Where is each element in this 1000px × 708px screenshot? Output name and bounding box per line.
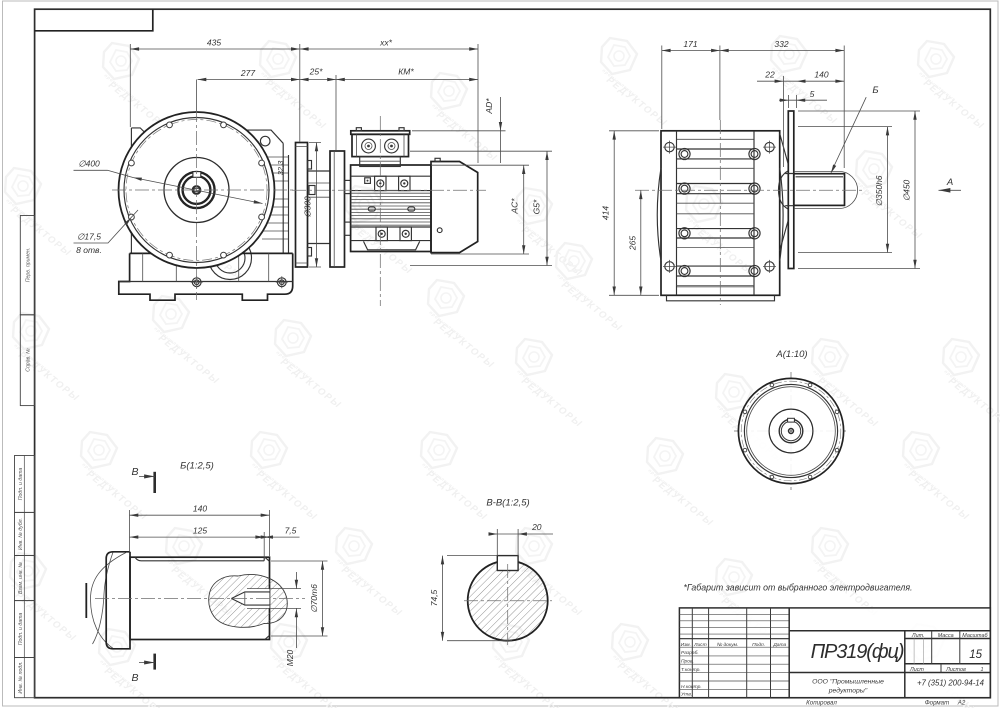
svg-text:32,3: 32,3 <box>276 160 285 175</box>
svg-text:140: 140 <box>814 70 828 80</box>
svg-text:Справ. №: Справ. № <box>26 348 32 372</box>
svg-text:Утв.: Утв. <box>681 692 692 698</box>
svg-text:Подп. и дата: Подп. и дата <box>18 613 24 646</box>
svg-text:*Габарит зависит от выбранного: *Габарит зависит от выбранного электродв… <box>683 583 912 593</box>
svg-text:Лит.: Лит. <box>911 633 925 639</box>
svg-text:А(1:10): А(1:10) <box>775 349 807 360</box>
svg-text:ПР319(фц): ПР319(фц) <box>811 641 904 663</box>
svg-text:Т.контр.: Т.контр. <box>681 667 701 673</box>
svg-text:Подп.: Подп. <box>752 642 765 648</box>
svg-text:Н.контр.: Н.контр. <box>681 684 702 690</box>
svg-text:В: В <box>131 466 138 478</box>
svg-text:8 отв.: 8 отв. <box>76 245 102 255</box>
svg-text:М20: М20 <box>285 649 295 666</box>
svg-text:В-В(1:2,5): В-В(1:2,5) <box>486 498 529 509</box>
svg-text:∅300: ∅300 <box>303 196 313 218</box>
svg-text:Б(1:2,5): Б(1:2,5) <box>180 461 214 472</box>
svg-text:Масштаб: Масштаб <box>962 633 988 639</box>
svg-text:Инв. № подл.: Инв. № подл. <box>18 661 24 693</box>
svg-text:редукторы": редукторы" <box>828 687 868 695</box>
svg-text:Листов: Листов <box>945 667 966 673</box>
svg-text:Лист: Лист <box>909 667 924 673</box>
svg-text:125: 125 <box>193 526 207 536</box>
svg-text:AD*: AD* <box>484 98 494 115</box>
svg-text:Взам. инв. №: Взам. инв. № <box>18 562 24 594</box>
svg-text:7,5: 7,5 <box>285 526 297 536</box>
svg-text:Лист: Лист <box>693 642 707 648</box>
svg-text:Разраб.: Разраб. <box>681 650 699 656</box>
svg-text:20: 20 <box>531 522 542 532</box>
svg-text:22: 22 <box>764 70 775 80</box>
svg-text:Б: Б <box>872 85 878 96</box>
svg-text:В: В <box>131 672 138 684</box>
svg-text:Инв. № дубл.: Инв. № дубл. <box>18 518 24 550</box>
svg-text:G5*: G5* <box>532 199 542 214</box>
svg-text:332: 332 <box>774 39 788 49</box>
svg-text:74,5: 74,5 <box>429 589 439 606</box>
svg-text:277: 277 <box>240 68 255 78</box>
svg-text:AC*: AC* <box>510 198 520 215</box>
svg-text:5: 5 <box>810 89 815 99</box>
svg-text:∅350h6: ∅350h6 <box>874 175 884 206</box>
svg-text:Копировал: Копировал <box>806 700 837 707</box>
svg-text:∅70m6: ∅70m6 <box>309 584 319 613</box>
svg-text:+7 (351) 200-94-14: +7 (351) 200-94-14 <box>917 679 985 688</box>
svg-text:А2: А2 <box>957 700 966 707</box>
svg-text:15: 15 <box>969 649 982 661</box>
svg-text:Подп. и дата: Подп. и дата <box>18 468 24 501</box>
svg-text:А: А <box>946 177 953 188</box>
svg-text:Перв. примен.: Перв. примен. <box>26 248 32 282</box>
svg-text:414: 414 <box>601 206 611 220</box>
svg-text:435: 435 <box>207 38 221 48</box>
svg-text:1: 1 <box>981 667 984 673</box>
svg-text:ООО "Промышленные: ООО "Промышленные <box>812 679 884 686</box>
svg-text:xx*: xx* <box>379 38 393 48</box>
svg-text:265: 265 <box>627 236 637 251</box>
svg-text:∅400: ∅400 <box>78 159 100 169</box>
svg-text:Дата: Дата <box>772 642 786 648</box>
svg-text:171: 171 <box>683 39 697 49</box>
svg-text:140: 140 <box>193 504 207 514</box>
svg-text:Формат: Формат <box>925 700 950 707</box>
svg-text:Пров.: Пров. <box>681 659 694 665</box>
svg-text:Изм.: Изм. <box>681 642 691 648</box>
svg-text:∅17,5: ∅17,5 <box>77 232 101 242</box>
svg-text:№ докум.: № докум. <box>717 642 739 648</box>
svg-text:25*: 25* <box>309 67 323 77</box>
svg-text:КМ*: КМ* <box>398 67 414 77</box>
svg-text:∅450: ∅450 <box>902 179 912 201</box>
svg-text:Масса: Масса <box>938 633 954 639</box>
